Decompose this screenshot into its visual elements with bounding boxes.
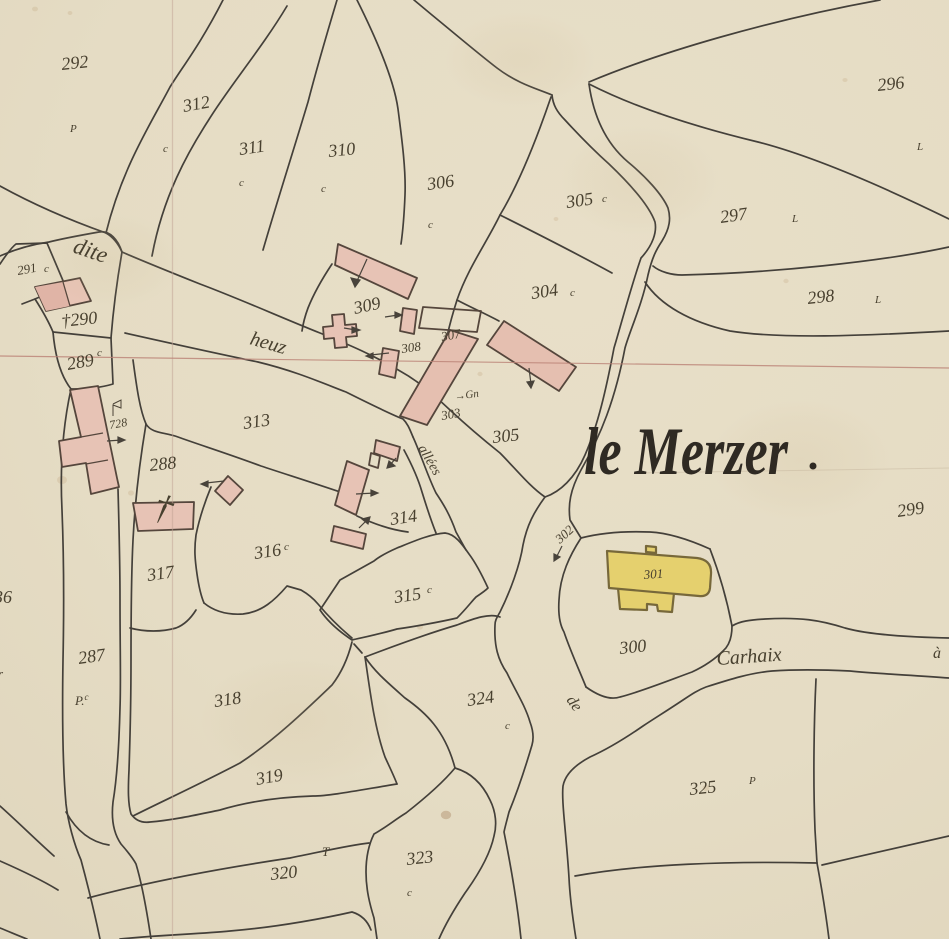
svg-text:c: c xyxy=(239,177,244,189)
svg-text:296: 296 xyxy=(876,72,905,95)
svg-text:308: 308 xyxy=(399,338,422,356)
svg-text:288: 288 xyxy=(148,452,177,475)
svg-text:316: 316 xyxy=(252,539,283,563)
svg-text:304: 304 xyxy=(529,279,560,303)
svg-text:323: 323 xyxy=(404,846,434,869)
svg-text:301: 301 xyxy=(642,566,663,582)
svg-text:c: c xyxy=(163,143,168,155)
svg-text:317: 317 xyxy=(145,561,177,585)
svg-text:36: 36 xyxy=(0,587,12,607)
svg-text:c: c xyxy=(284,541,289,553)
svg-text:c: c xyxy=(407,887,412,899)
svg-text:à: à xyxy=(933,645,941,662)
svg-text:318: 318 xyxy=(212,687,243,711)
svg-text:325: 325 xyxy=(687,776,717,799)
svg-text:310: 310 xyxy=(326,138,356,161)
svg-text:le Merzer: le Merzer xyxy=(584,413,788,489)
svg-text:311: 311 xyxy=(237,136,266,160)
svg-text:297: 297 xyxy=(719,203,750,227)
svg-text:324: 324 xyxy=(465,686,496,710)
svg-text:L: L xyxy=(916,141,923,153)
svg-text:c: c xyxy=(505,720,510,732)
svg-text:c: c xyxy=(427,584,432,596)
svg-text:L: L xyxy=(791,213,798,225)
svg-text:P: P xyxy=(748,775,756,787)
svg-text:c: c xyxy=(428,219,433,231)
svg-text:313: 313 xyxy=(241,409,272,433)
svg-text:c: c xyxy=(602,193,607,205)
svg-text:306: 306 xyxy=(425,170,456,194)
svg-text:305: 305 xyxy=(564,188,595,212)
svg-text:L: L xyxy=(874,294,881,306)
svg-text:c: c xyxy=(44,263,49,275)
svg-text:299: 299 xyxy=(896,497,926,521)
svg-text:314: 314 xyxy=(388,505,419,529)
svg-text:Carhaix: Carhaix xyxy=(716,643,783,670)
svg-text:†290: †290 xyxy=(60,307,98,331)
svg-text:300: 300 xyxy=(617,635,647,658)
svg-text:305: 305 xyxy=(490,424,520,447)
svg-text:P: P xyxy=(69,123,77,135)
svg-text:287: 287 xyxy=(77,644,108,668)
svg-text:c: c xyxy=(97,347,102,359)
svg-text:c: c xyxy=(321,183,326,195)
svg-text:315: 315 xyxy=(392,583,423,607)
svg-text:298: 298 xyxy=(806,285,835,308)
svg-text:c: c xyxy=(570,287,575,299)
svg-text:320: 320 xyxy=(268,861,298,884)
svg-text:292: 292 xyxy=(60,51,89,74)
svg-text:T: T xyxy=(322,844,330,859)
